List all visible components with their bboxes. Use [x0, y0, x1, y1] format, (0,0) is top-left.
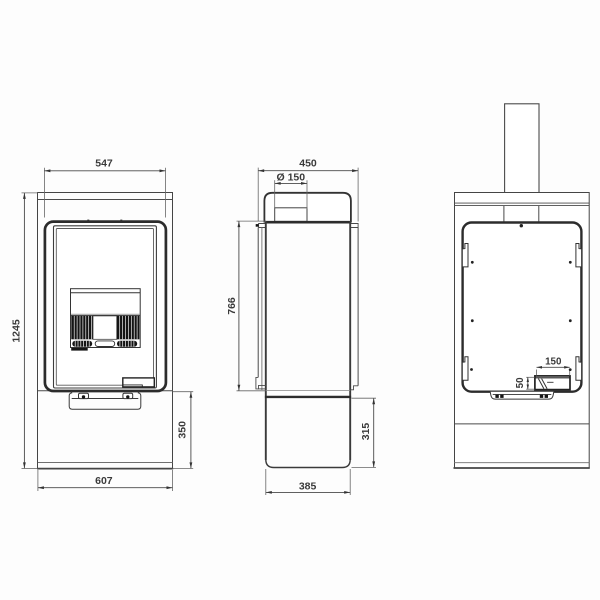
svg-text:547: 547	[95, 158, 113, 170]
svg-text:315: 315	[360, 423, 372, 441]
svg-text:150: 150	[545, 356, 562, 367]
svg-text:450: 450	[299, 157, 317, 169]
svg-text:50: 50	[515, 377, 526, 388]
svg-text:350: 350	[177, 421, 189, 439]
svg-text:766: 766	[226, 297, 238, 315]
svg-text:607: 607	[95, 475, 113, 487]
svg-text:385: 385	[299, 480, 317, 492]
svg-text:Ø 150: Ø 150	[276, 171, 305, 183]
svg-text:1245: 1245	[11, 319, 23, 343]
